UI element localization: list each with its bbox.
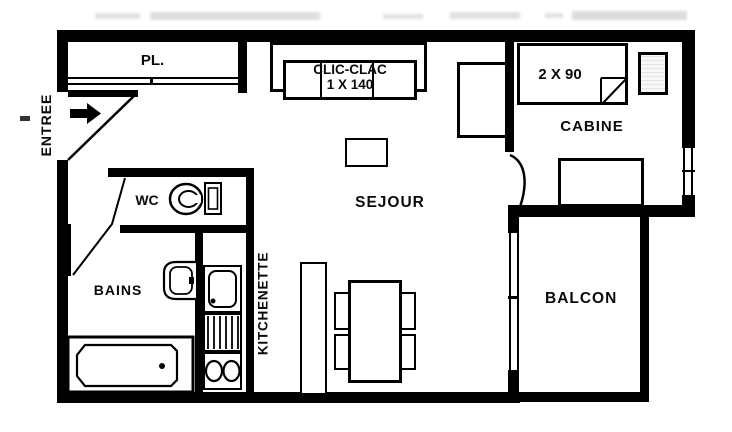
chair (400, 334, 416, 370)
entrance-door-swing (68, 93, 137, 160)
balcony-door-tick (508, 296, 519, 299)
closet-sliding-door-track (68, 77, 238, 79)
bathtub-icon (68, 337, 193, 392)
left-tick-mark (20, 116, 30, 121)
cabine-door-swing (510, 155, 525, 207)
wall-wc-bottom (120, 225, 254, 233)
wall-hall-stub (68, 90, 138, 97)
wall-balcony-bottom (508, 392, 649, 402)
wall-top (57, 30, 694, 42)
balcony-door-glass (517, 233, 519, 370)
wall-bains-door-jamb (68, 224, 71, 276)
cabine-bed-size-label: 2 X 90 (520, 66, 600, 83)
entry-arrow-icon (70, 103, 101, 124)
washbasin-icon (164, 262, 196, 299)
top-smudge (572, 11, 687, 20)
wall-bottom (57, 392, 520, 403)
cabine-window-tick (682, 170, 695, 172)
wall-left-upper (57, 30, 68, 92)
cabine-wardrobe (638, 52, 668, 95)
counter (300, 262, 327, 395)
stove (203, 352, 242, 390)
wall-left-lower (57, 160, 68, 403)
wall-right-upper (682, 30, 695, 145)
wall-balcony-stub-bottom (508, 370, 519, 392)
wall-bains-kitchenette (195, 225, 203, 403)
wall-balcony-stub-top (508, 217, 519, 233)
room-label-bains: BAINS (88, 282, 148, 298)
sejour-cupboard (457, 62, 508, 138)
coffee-table (345, 138, 388, 167)
room-label-sejour: SEJOUR (355, 194, 425, 212)
closet-sliding-door-track (68, 83, 238, 85)
room-label-entree: ENTREE (38, 90, 54, 160)
balcony-door-glass (509, 233, 511, 370)
room-label-kitchenette: KITCHENETTE (256, 244, 271, 364)
dining-table (348, 280, 402, 383)
top-smudge (150, 12, 320, 20)
wall-wc-top (108, 168, 254, 177)
room-label-pl: PL. (120, 52, 185, 69)
wall-pl-partition (238, 42, 247, 93)
floor-plan: CLIC-CLAC 1 X 140 ENTREE PL. WC BAINS KI… (0, 0, 732, 432)
cabine-window-tick (682, 195, 695, 198)
wc-bains-door-swing (73, 178, 125, 275)
top-smudge (545, 13, 563, 18)
room-label-wc: WC (130, 192, 164, 208)
top-smudge (95, 13, 140, 19)
clic-clac-size: 1 X 140 (283, 77, 417, 92)
kitchen-sink-bowl (208, 270, 237, 308)
toilet-icon (170, 183, 221, 214)
chair (400, 292, 416, 330)
wall-balcony-right (640, 217, 649, 402)
clic-clac-name: CLIC-CLAC (283, 62, 417, 77)
closet-sliding-door-split (150, 77, 153, 85)
room-label-cabine: CABINE (557, 118, 627, 135)
cabine-window-tick (682, 145, 695, 148)
room-label-balcon: BALCON (545, 290, 615, 308)
drainboard (203, 313, 242, 352)
top-smudge (383, 14, 423, 19)
cabine-bed-lower (558, 158, 644, 207)
top-smudge (450, 12, 520, 19)
wall-kitchenette-right (246, 168, 254, 403)
clic-clac-label: CLIC-CLAC 1 X 140 (283, 62, 417, 92)
